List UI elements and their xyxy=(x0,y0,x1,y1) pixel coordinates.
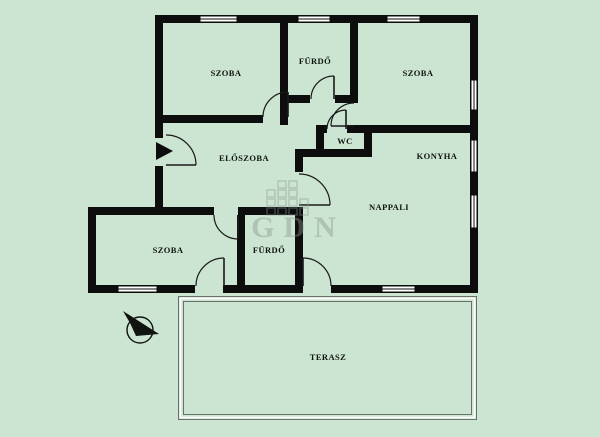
entrance-arrow-icon xyxy=(156,142,173,160)
floorplan-canvas: SZOBA FÜRDŐ SZOBA ELŐSZOBA WC KONYHA NAP… xyxy=(0,0,600,437)
room-label-szoba-top-left: SZOBA xyxy=(211,68,242,78)
room-label-terasz: TERASZ xyxy=(310,352,346,362)
room-label-furdo-top: FÜRDŐ xyxy=(299,56,331,66)
room-label-furdo-bottom: FÜRDŐ xyxy=(253,245,285,255)
room-label-szoba-bottom: SZOBA xyxy=(153,245,184,255)
room-label-wc: WC xyxy=(337,136,352,146)
room-label-konyha: KONYHA xyxy=(417,151,458,161)
room-label-eloszoba: ELŐSZOBA xyxy=(219,153,269,163)
room-label-szoba-top-right: SZOBA xyxy=(403,68,434,78)
north-arrow-icon xyxy=(123,311,159,343)
room-label-nappali: NAPPALI xyxy=(369,202,409,212)
watermark-text: GDN xyxy=(251,211,345,245)
